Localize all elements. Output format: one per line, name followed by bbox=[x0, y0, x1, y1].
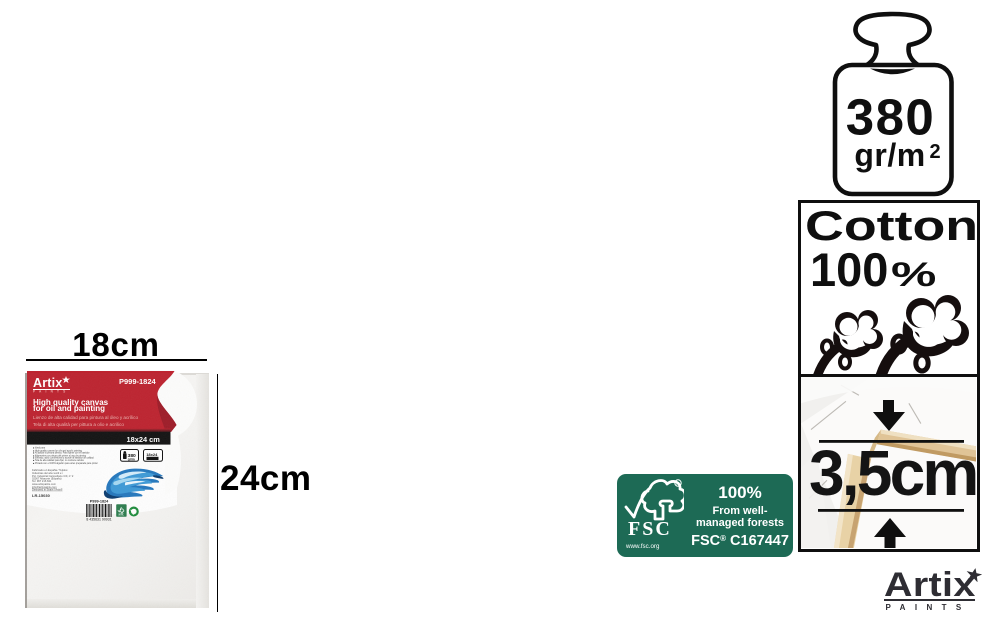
svg-text:R: R bbox=[676, 481, 680, 487]
svg-text:gr/m: gr/m bbox=[854, 137, 925, 173]
svg-text:2: 2 bbox=[930, 141, 941, 163]
